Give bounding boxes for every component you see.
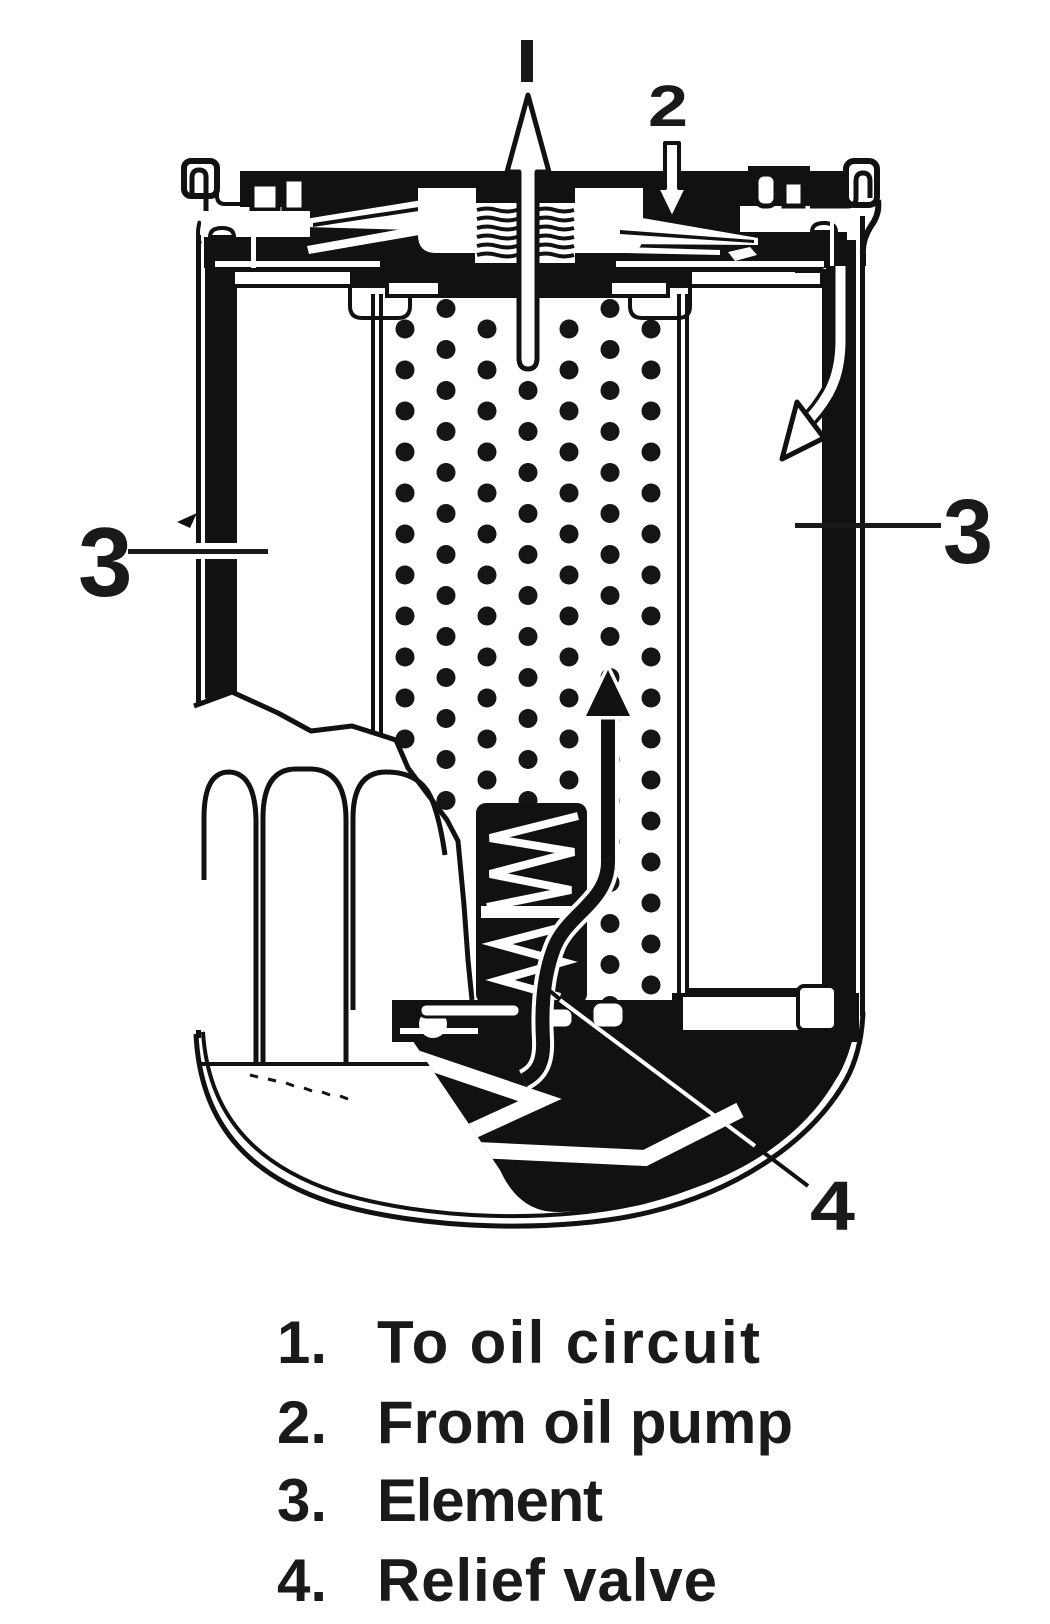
svg-text:Relief valve: Relief valve [377, 1547, 717, 1614]
svg-text:2: 2 [648, 74, 688, 139]
svg-text:3: 3 [943, 481, 993, 583]
svg-text:2.: 2. [277, 1389, 327, 1456]
svg-text:1.: 1. [277, 1309, 327, 1376]
svg-text:3.: 3. [277, 1467, 327, 1534]
svg-text:4: 4 [810, 1167, 855, 1245]
svg-text:4.: 4. [277, 1547, 327, 1614]
svg-text:Element: Element [377, 1467, 603, 1534]
svg-text:From oil pump: From oil pump [377, 1389, 793, 1456]
svg-text:3: 3 [78, 507, 133, 617]
svg-text:To oil circuit: To oil circuit [377, 1309, 760, 1376]
